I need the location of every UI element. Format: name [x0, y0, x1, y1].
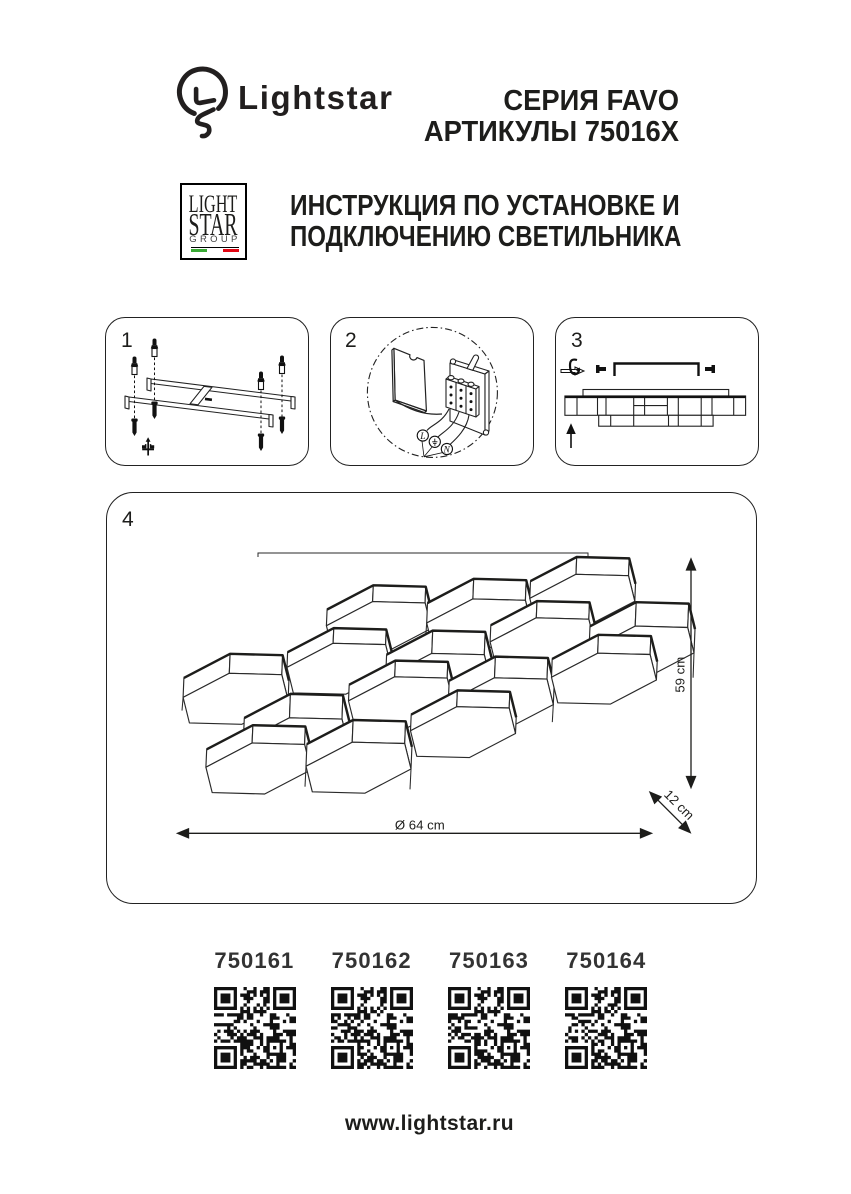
- svg-text:Ø 64 cm: Ø 64 cm: [395, 818, 445, 833]
- svg-text:12 cm: 12 cm: [661, 787, 697, 823]
- svg-text:59 cm: 59 cm: [673, 657, 688, 693]
